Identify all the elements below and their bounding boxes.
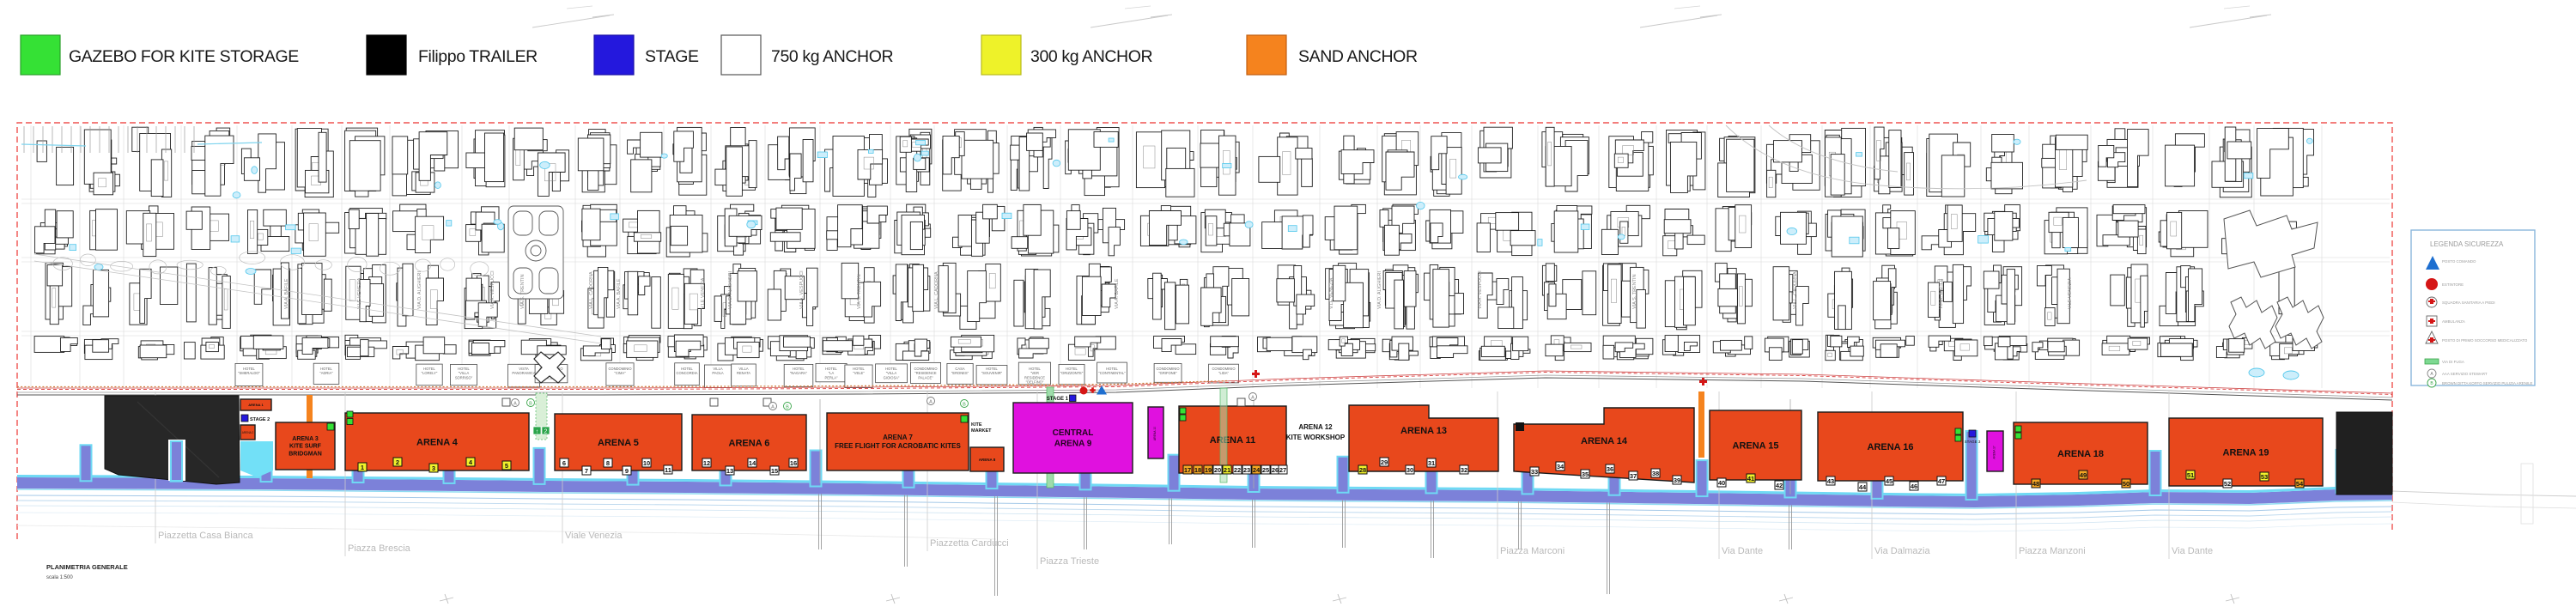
svg-text:42: 42 <box>1776 482 1783 489</box>
svg-text:VIA A. VESPUCCI: VIA A. VESPUCCI <box>1478 270 1483 309</box>
svg-text:VIA L. CADORNA: VIA L. CADORNA <box>589 271 594 309</box>
svg-text:BRIDGMAN: BRIDGMAN <box>289 451 322 457</box>
svg-text:"LIDA": "LIDA" <box>1218 371 1230 375</box>
svg-text:54: 54 <box>2296 480 2304 488</box>
svg-text:B: B <box>529 402 532 407</box>
svg-text:Piazzetta Carducci: Piazzetta Carducci <box>930 538 1009 549</box>
svg-text:VIA S. TRENTIN: VIA S. TRENTIN <box>520 274 526 309</box>
svg-text:38: 38 <box>1652 470 1659 477</box>
svg-text:PALACE": PALACE" <box>918 375 933 379</box>
svg-text:41: 41 <box>1747 475 1754 483</box>
svg-text:FREE FLIGHT FOR ACROBATIC KITE: FREE FLIGHT FOR ACROBATIC KITES <box>835 442 961 450</box>
svg-text:VIA A. VESPUCCI: VIA A. VESPUCCI <box>799 270 805 309</box>
svg-text:VIA A. BAFILE: VIA A. BAFILE <box>1939 278 1944 309</box>
svg-text:ESTINTORE: ESTINTORE <box>2442 282 2464 287</box>
svg-text:39: 39 <box>1674 476 1680 484</box>
svg-text:V.LE VENEZIA: V.LE VENEZIA <box>1329 277 1334 309</box>
svg-text:A: A <box>929 400 933 405</box>
svg-text:43: 43 <box>1827 477 1834 485</box>
svg-text:SAND ANCHOR: SAND ANCHOR <box>1298 47 1418 66</box>
svg-text:V.LE VENEZIA: V.LE VENEZIA <box>701 277 706 309</box>
svg-text:"CIMA": "CIMA" <box>614 371 626 375</box>
svg-text:"ERONES": "ERONES" <box>951 371 969 375</box>
svg-text:3: 3 <box>432 464 435 472</box>
svg-text:GAZEBO FOR KITE STORAGE: GAZEBO FOR KITE STORAGE <box>69 47 299 66</box>
svg-text:VIA A. BAFILE: VIA A. BAFILE <box>617 278 622 309</box>
svg-text:10: 10 <box>643 459 650 467</box>
svg-text:ARENA 4: ARENA 4 <box>416 437 459 447</box>
svg-text:23: 23 <box>1243 466 1250 474</box>
svg-text:V.LE VENEZIA: V.LE VENEZIA <box>357 277 362 309</box>
svg-text:37: 37 <box>1630 472 1637 480</box>
svg-text:"CONTINENTAL": "CONTINENTAL" <box>1098 371 1126 375</box>
svg-text:ARENA 16: ARENA 16 <box>1868 442 1914 452</box>
svg-text:45: 45 <box>1886 477 1893 485</box>
svg-text:B: B <box>963 403 966 408</box>
svg-text:PLANIMETRIA GENERALE: PLANIMETRIA GENERALE <box>46 563 128 571</box>
svg-text:30: 30 <box>1406 466 1413 474</box>
svg-text:ARENA 8: ARENA 8 <box>979 458 996 462</box>
svg-text:1: 1 <box>361 464 364 471</box>
svg-text:ARENA 1: ARENA 1 <box>248 403 264 407</box>
svg-text:STAGE 1: STAGE 1 <box>1047 397 1069 402</box>
svg-text:VIA S. TRENTIN: VIA S. TRENTIN <box>857 274 862 309</box>
svg-text:46: 46 <box>1911 483 1917 490</box>
svg-text:47: 47 <box>1938 477 1945 485</box>
svg-text:"SOUVENIR": "SOUVENIR" <box>981 371 1003 375</box>
svg-text:48: 48 <box>2032 480 2039 488</box>
svg-text:VIA S. TRENTIN: VIA S. TRENTIN <box>1632 274 1637 309</box>
svg-text:"LORELY": "LORELY" <box>422 371 438 375</box>
svg-text:52: 52 <box>2224 480 2231 488</box>
svg-text:ARENA 14: ARENA 14 <box>1581 436 1628 446</box>
svg-text:300 kg ANCHOR: 300 kg ANCHOR <box>1030 47 1153 66</box>
svg-text:36: 36 <box>1607 465 1613 473</box>
svg-text:9: 9 <box>625 467 629 475</box>
svg-text:7: 7 <box>585 467 588 475</box>
svg-text:PAOLA: PAOLA <box>712 371 724 375</box>
svg-text:B: B <box>786 405 789 410</box>
svg-text:"ORIZZONTE": "ORIZZONTE" <box>1060 371 1084 375</box>
svg-text:VIA A. BAFILE: VIA A. BAFILE <box>1115 278 1120 309</box>
svg-text:V.LE VENEZIA: V.LE VENEZIA <box>2068 277 2073 309</box>
svg-text:LEGENDA SICUREZZA: LEGENDA SICUREZZA <box>2430 240 2504 248</box>
svg-text:ARENA 9: ARENA 9 <box>1054 440 1092 449</box>
svg-text:2: 2 <box>544 429 548 435</box>
svg-text:ARENA 2: ARENA 2 <box>242 431 254 434</box>
svg-text:40: 40 <box>1718 479 1725 487</box>
svg-text:6: 6 <box>562 459 566 467</box>
svg-text:A: A <box>771 405 775 410</box>
svg-text:ARENA 10: ARENA 10 <box>1153 427 1157 440</box>
svg-text:A: A <box>513 402 517 407</box>
svg-text:Piazza Marconi: Piazza Marconi <box>1500 546 1564 556</box>
svg-text:PERLA": PERLA" <box>825 375 838 379</box>
svg-text:50: 50 <box>2123 480 2129 488</box>
svg-text:Piazza Trieste: Piazza Trieste <box>1040 556 1099 567</box>
svg-text:28: 28 <box>1359 466 1366 474</box>
svg-text:19: 19 <box>1205 466 1212 474</box>
svg-text:MARKET: MARKET <box>971 428 992 434</box>
svg-text:VIA D. ALIGHIERI: VIA D. ALIGHIERI <box>1377 271 1382 309</box>
svg-text:KITE WORKSHOP: KITE WORKSHOP <box>1286 434 1346 441</box>
svg-text:22: 22 <box>1234 466 1241 474</box>
svg-text:Via Dante: Via Dante <box>2172 546 2213 556</box>
svg-text:A: A <box>1251 396 1255 401</box>
svg-text:8: 8 <box>606 459 610 467</box>
svg-text:CENTRAL: CENTRAL <box>1053 428 1094 438</box>
svg-text:VIA A. BAFILE: VIA A. BAFILE <box>284 278 289 309</box>
svg-text:VIA D. ALIGHIERI: VIA D. ALIGHIERI <box>728 271 733 309</box>
svg-text:VIA DI FUGA: VIA DI FUGA <box>2442 360 2464 364</box>
svg-text:16: 16 <box>790 459 797 467</box>
svg-text:"GRIFONE": "GRIFONE" <box>1158 371 1177 375</box>
svg-text:31: 31 <box>1428 459 1435 467</box>
svg-text:2: 2 <box>396 458 399 466</box>
svg-text:ARENA 15: ARENA 15 <box>1733 440 1779 451</box>
svg-text:scala 1:500: scala 1:500 <box>46 575 73 580</box>
svg-text:51: 51 <box>2187 471 2194 479</box>
svg-text:POSTO DI PRIMO SOCCORSO MEDICA: POSTO DI PRIMO SOCCORSO MEDICALIZZATO <box>2442 338 2528 343</box>
svg-text:ARENA 5: ARENA 5 <box>598 438 639 448</box>
svg-text:Piazza Brescia: Piazza Brescia <box>348 543 411 554</box>
svg-text:"ADRIA": "ADRIA" <box>319 371 333 375</box>
svg-text:5: 5 <box>505 462 508 470</box>
svg-text:26: 26 <box>1272 466 1279 474</box>
svg-text:KITE: KITE <box>971 422 982 428</box>
svg-text:32: 32 <box>1461 466 1467 474</box>
svg-text:AMBULANZA: AMBULANZA <box>2442 319 2465 324</box>
svg-text:12: 12 <box>703 459 710 467</box>
svg-text:21: 21 <box>1224 466 1230 474</box>
svg-text:RENATA: RENATA <box>737 371 750 375</box>
svg-text:VIA D. ALIGHIERI: VIA D. ALIGHIERI <box>417 271 422 309</box>
svg-text:13: 13 <box>726 467 733 475</box>
svg-text:53: 53 <box>2261 473 2268 481</box>
svg-text:27: 27 <box>1279 466 1286 474</box>
svg-text:33: 33 <box>1531 468 1538 476</box>
svg-text:SQUADRA SANITARIA A PIEDI: SQUADRA SANITARIA A PIEDI <box>2442 300 2495 305</box>
svg-text:20: 20 <box>1214 466 1221 474</box>
svg-text:750 kg ANCHOR: 750 kg ANCHOR <box>771 47 894 66</box>
svg-text:25: 25 <box>1262 466 1269 474</box>
svg-text:BROWN DITTA KOFFO SERVIZIO PUL: BROWN DITTA KOFFO SERVIZIO PULIZIA ARENI… <box>2442 381 2533 385</box>
svg-text:"SMERALDO": "SMERALDO" <box>238 371 260 375</box>
svg-text:"VELE": "VELE" <box>853 371 865 375</box>
svg-text:STAGE: STAGE <box>645 47 699 66</box>
svg-text:14: 14 <box>749 459 756 467</box>
svg-text:ARENA 19: ARENA 19 <box>2223 447 2269 458</box>
svg-text:"NAGARA": "NAGARA" <box>790 371 808 375</box>
svg-text:STAGE 2: STAGE 2 <box>250 417 270 422</box>
svg-text:Piazza Manzoni: Piazza Manzoni <box>2019 546 2086 556</box>
svg-text:17: 17 <box>1184 466 1191 474</box>
svg-text:VIA L. CADORNA: VIA L. CADORNA <box>934 271 939 309</box>
svg-text:AAA SERVIZIO STEWART: AAA SERVIZIO STEWART <box>2442 372 2488 376</box>
svg-text:ARENA 6: ARENA 6 <box>729 438 770 448</box>
svg-text:"DELFINO": "DELFINO" <box>1026 380 1044 385</box>
svg-text:ARENA 11: ARENA 11 <box>1210 435 1255 446</box>
svg-text:KITE SURF: KITE SURF <box>289 444 322 450</box>
svg-text:15: 15 <box>771 467 778 475</box>
svg-text:Via Dalmazia: Via Dalmazia <box>1874 546 1930 556</box>
svg-text:Viale Venezia: Viale Venezia <box>565 531 623 541</box>
svg-text:49: 49 <box>2080 471 2087 479</box>
svg-text:18: 18 <box>1194 466 1201 474</box>
svg-text:SORRISO": SORRISO" <box>455 375 473 379</box>
svg-text:24: 24 <box>1253 466 1261 474</box>
svg-text:CONCORDIA: CONCORDIA <box>676 371 697 375</box>
svg-text:POSTO COMANDO: POSTO COMANDO <box>2442 259 2476 264</box>
svg-text:ARENA 13: ARENA 13 <box>1400 426 1447 436</box>
svg-text:STAGE 3: STAGE 3 <box>1965 440 1981 444</box>
svg-text:VIA A. VESPUCCI: VIA A. VESPUCCI <box>490 270 495 309</box>
svg-text:↑: ↑ <box>536 429 539 435</box>
svg-text:ARENA 18: ARENA 18 <box>2057 449 2104 459</box>
svg-text:11: 11 <box>665 466 671 474</box>
svg-text:PANORAMICA: PANORAMICA <box>512 371 535 375</box>
svg-text:34: 34 <box>1557 463 1564 470</box>
svg-text:Piazzetta Casa Bianca: Piazzetta Casa Bianca <box>158 531 254 541</box>
svg-text:35: 35 <box>1582 470 1589 478</box>
svg-text:GIOIOSA": GIOIOSA" <box>884 375 900 379</box>
svg-text:ARENA 12: ARENA 12 <box>1298 423 1333 431</box>
svg-text:ARENA 3: ARENA 3 <box>292 436 319 442</box>
svg-text:Via Dante: Via Dante <box>1722 546 1763 556</box>
svg-text:Filippo TRAILER: Filippo TRAILER <box>418 47 538 66</box>
svg-text:ARENA 7: ARENA 7 <box>883 434 913 441</box>
svg-text:VIA L. CADORNA: VIA L. CADORNA <box>1793 271 1798 309</box>
svg-text:44: 44 <box>1859 483 1867 491</box>
svg-text:29: 29 <box>1381 458 1388 466</box>
svg-text:ARENA 17: ARENA 17 <box>1993 446 1996 458</box>
